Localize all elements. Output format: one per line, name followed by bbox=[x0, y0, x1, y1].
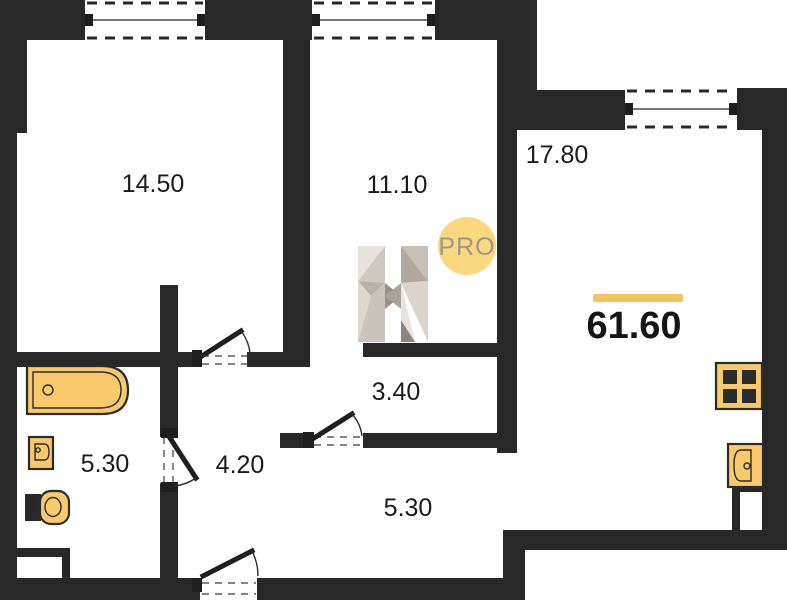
shaft-wall bbox=[62, 557, 70, 578]
wall bbox=[737, 88, 787, 130]
logo-pro-badge-text: PRO bbox=[438, 233, 495, 261]
bathtub bbox=[27, 366, 128, 414]
wall bbox=[205, 0, 312, 40]
wall bbox=[363, 343, 497, 357]
wall bbox=[435, 0, 537, 40]
room-area-label-3-40: 3.40 bbox=[372, 378, 421, 407]
room-area-label-corridor-5-30: 5.30 bbox=[384, 494, 433, 523]
door-symbol-bathroom bbox=[161, 428, 196, 492]
toilet bbox=[25, 491, 69, 524]
wall bbox=[0, 133, 17, 600]
stove bbox=[716, 363, 762, 409]
window-symbol-left bbox=[85, 3, 205, 38]
room-area-label-bathroom-5-30: 5.30 bbox=[81, 450, 130, 479]
shaft-wall bbox=[17, 548, 70, 557]
floorplan: PRO 14.50 11.10 17.80 3.40 4.20 5.30 5.3… bbox=[0, 0, 787, 600]
wall bbox=[283, 40, 310, 367]
door-symbol-room bbox=[192, 331, 250, 367]
kitchen-sink bbox=[728, 444, 763, 487]
room-area-label-17-80: 17.80 bbox=[526, 141, 589, 170]
room-area-label-4-20: 4.20 bbox=[216, 451, 265, 480]
total-area-label: 61.60 bbox=[586, 305, 681, 348]
room-area-label-11-10: 11.10 bbox=[367, 171, 428, 200]
window-symbol-right bbox=[625, 91, 737, 127]
wall bbox=[497, 130, 517, 453]
door-symbol-corridor bbox=[303, 414, 362, 448]
logo-h-mark bbox=[358, 246, 428, 342]
wall bbox=[160, 483, 178, 578]
wall bbox=[503, 530, 525, 598]
wall bbox=[503, 530, 787, 550]
logo-pro-badge: PRO bbox=[438, 217, 496, 275]
wall bbox=[257, 578, 525, 600]
wall bbox=[160, 285, 178, 437]
wall bbox=[0, 0, 27, 133]
wall bbox=[363, 433, 517, 448]
wall bbox=[0, 578, 200, 600]
total-area-accent-bar bbox=[593, 294, 683, 302]
door-symbol-entrance bbox=[192, 551, 258, 594]
wall bbox=[762, 130, 787, 550]
room-area-label-14-50: 14.50 bbox=[122, 170, 185, 199]
wall bbox=[497, 90, 625, 130]
window-symbol-middle bbox=[312, 3, 435, 38]
wall bbox=[247, 352, 310, 367]
bathroom-sink bbox=[29, 437, 53, 469]
